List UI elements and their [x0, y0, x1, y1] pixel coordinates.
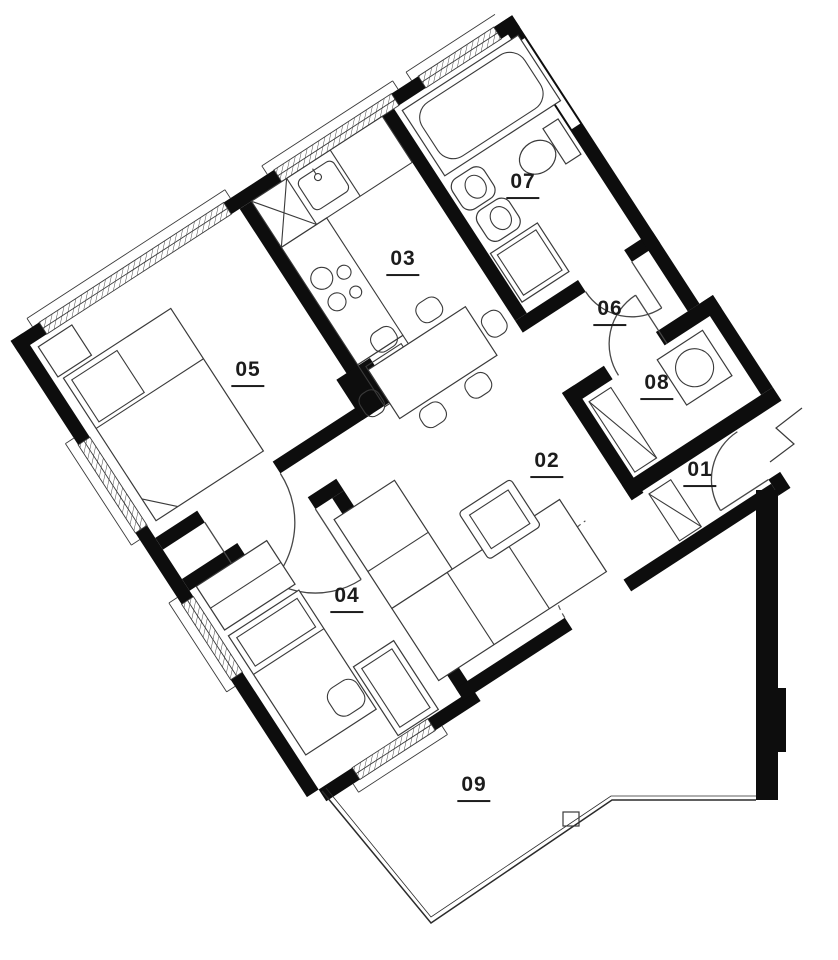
- room-label-03: 03: [386, 247, 419, 276]
- sofa-sectional: [334, 411, 606, 681]
- room-label-08: 08: [640, 371, 673, 400]
- apartment-rotated-group: [0, 0, 835, 823]
- bed-room04: [228, 590, 376, 755]
- entry-stair-mark: [770, 408, 802, 462]
- room-label-05: 05: [231, 358, 264, 387]
- room-label-09: 09: [457, 773, 490, 802]
- closet-room01: [649, 480, 701, 541]
- furniture-layer: [35, 30, 802, 784]
- window-room05-top: [39, 203, 231, 335]
- right-wall-notch: [778, 688, 786, 752]
- window-room03-top: [274, 94, 399, 182]
- room-label-04: 04: [330, 584, 363, 613]
- room-label-02: 02: [530, 449, 563, 478]
- room-label-07: 07: [506, 170, 539, 199]
- room-label-06: 06: [593, 297, 626, 326]
- floor-plan-page: 01 02 03 04 05 06 07 08 09: [0, 0, 838, 960]
- right-exterior-wall: [756, 490, 778, 800]
- room-label-01: 01: [683, 458, 716, 487]
- terrace-railing: [322, 791, 756, 923]
